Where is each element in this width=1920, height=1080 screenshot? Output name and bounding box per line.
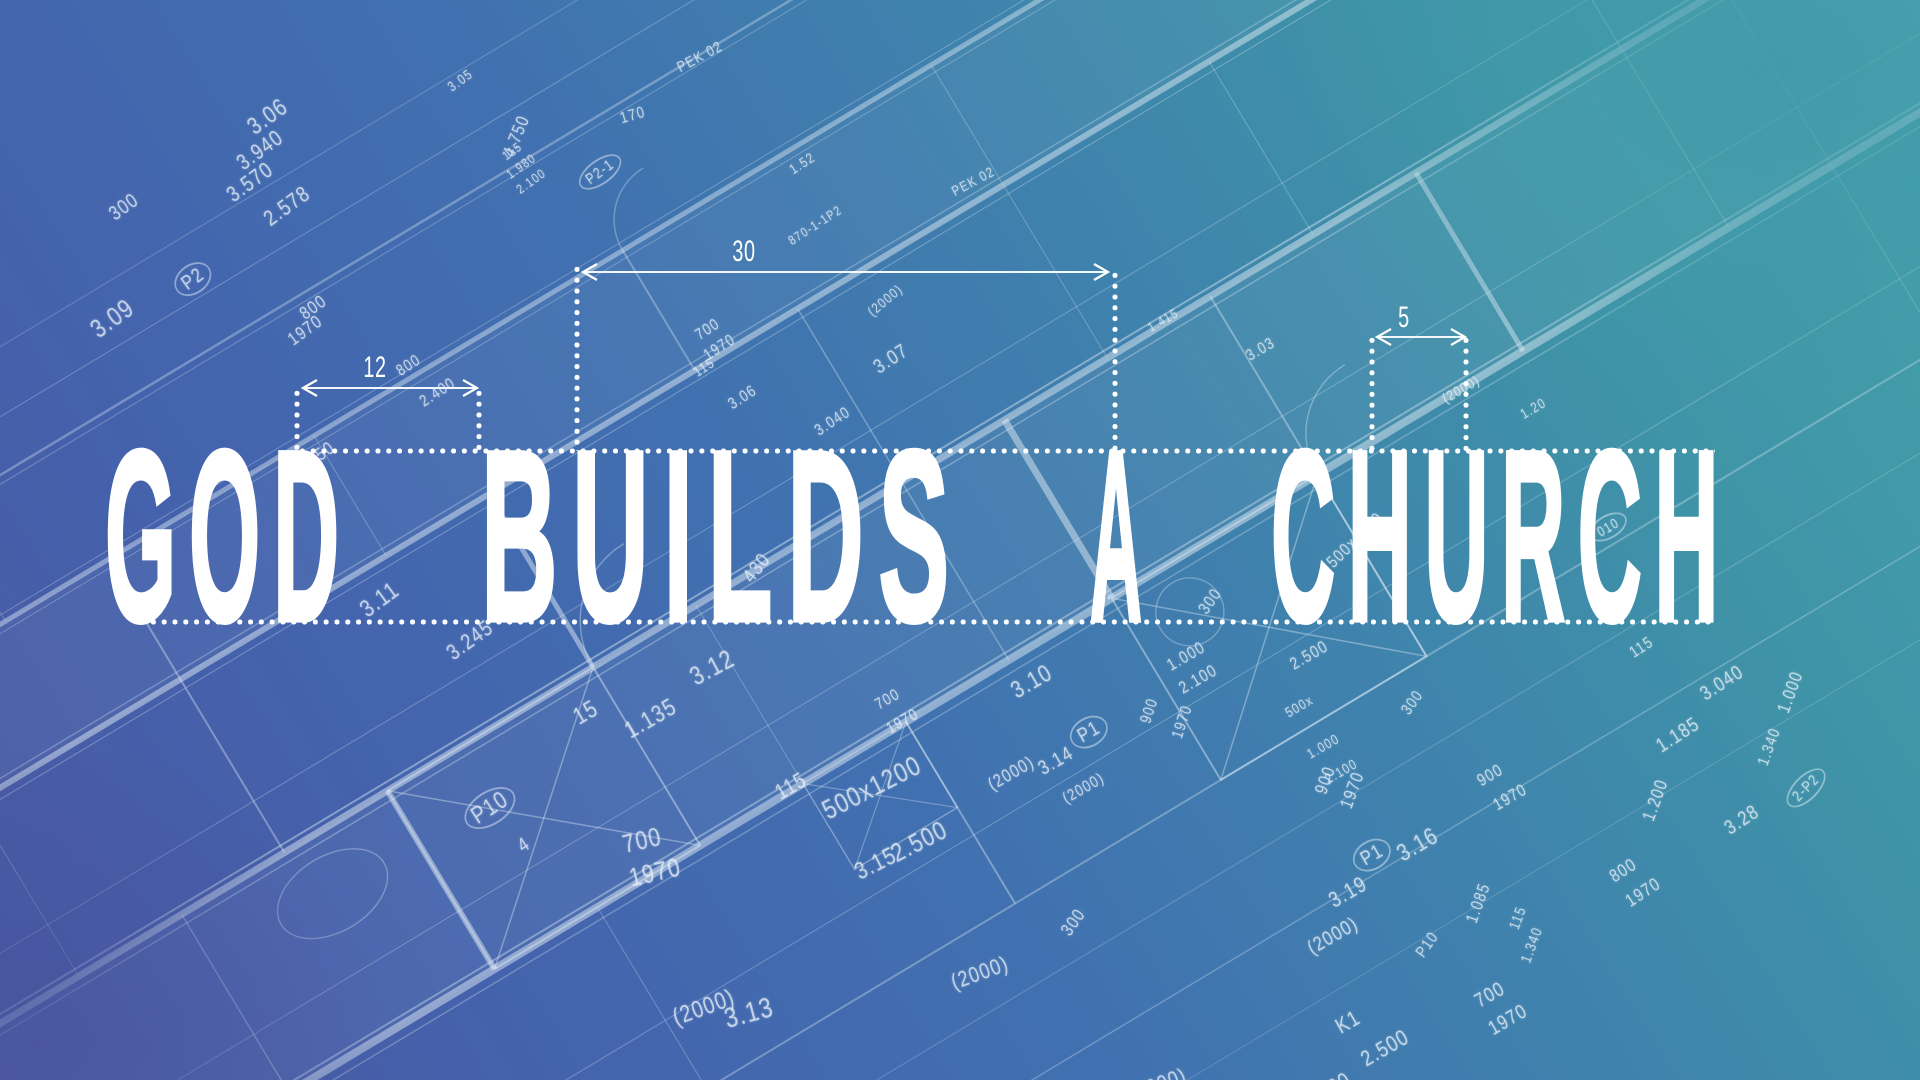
title-word-a: A bbox=[1090, 400, 1152, 671]
title-word-church: CHURCH bbox=[1271, 400, 1731, 672]
title-word-god: GOD bbox=[105, 400, 352, 671]
slide-title: GODBUILDSACHURCH bbox=[0, 0, 1920, 1080]
title-word-builds: BUILDS bbox=[481, 400, 964, 672]
title-slide: 3.063.9403.5702.5783003.054.7501701151.9… bbox=[0, 0, 1920, 1080]
